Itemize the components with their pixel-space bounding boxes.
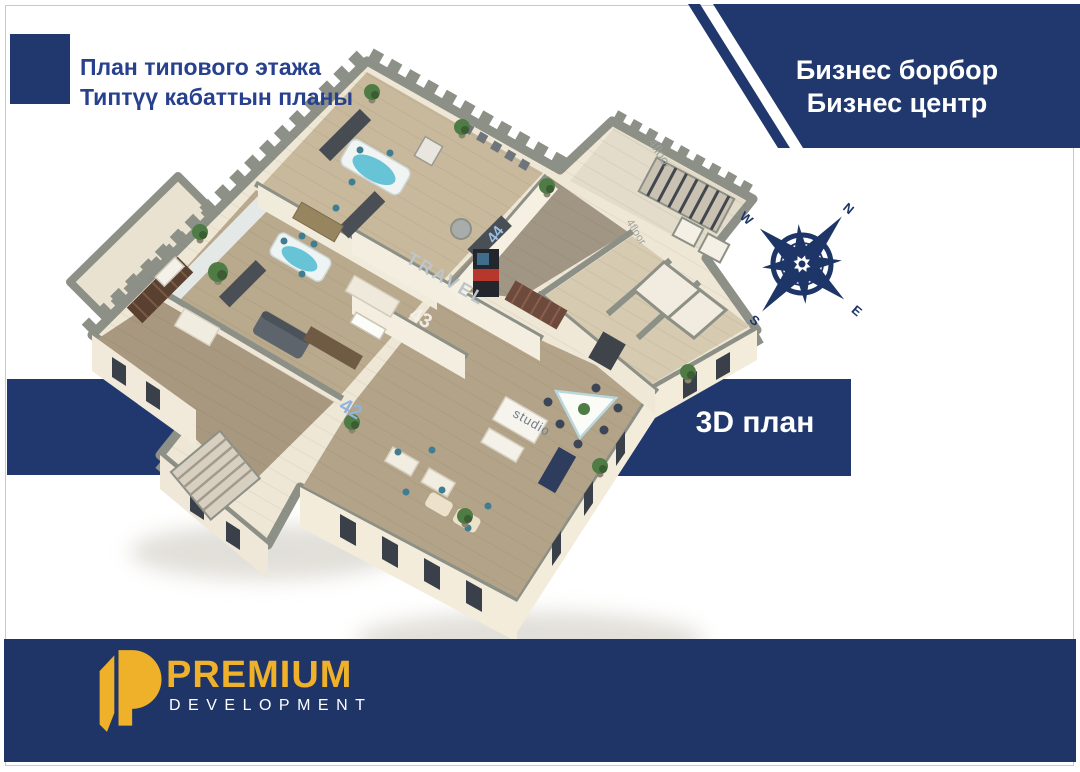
compass-s: S [747, 312, 764, 329]
compass-rose: N E S W [720, 182, 884, 346]
brand-subtitle: DEVELOPMENT [169, 697, 372, 715]
poster-page: TRAVEL 43 42 44 studio 4floor 4floor [0, 0, 1080, 772]
title-line-ru: План типового этажа [80, 52, 353, 82]
badge-3d-plan-label: 3D план [662, 406, 848, 440]
banner-title: Бизнес борбор Бизнес центр [788, 54, 1006, 120]
banner-line-ky: Бизнес борбор [788, 54, 1006, 87]
footer-bar: PREMIUM DEVELOPMENT [4, 639, 1076, 762]
premium-logo-p-icon [94, 648, 164, 734]
brand-name: PREMIUM [166, 654, 352, 697]
compass-n: N [840, 200, 857, 218]
accent-square [10, 34, 70, 104]
round-table [451, 219, 471, 239]
page-title: План типового этажа Типтүү кабаттын план… [80, 52, 353, 112]
title-line-ky: Типтүү кабаттын планы [80, 82, 353, 112]
banner-line-ru: Бизнес центр [788, 87, 1006, 120]
compass-w: W [737, 208, 757, 228]
compass-e: E [849, 302, 866, 319]
